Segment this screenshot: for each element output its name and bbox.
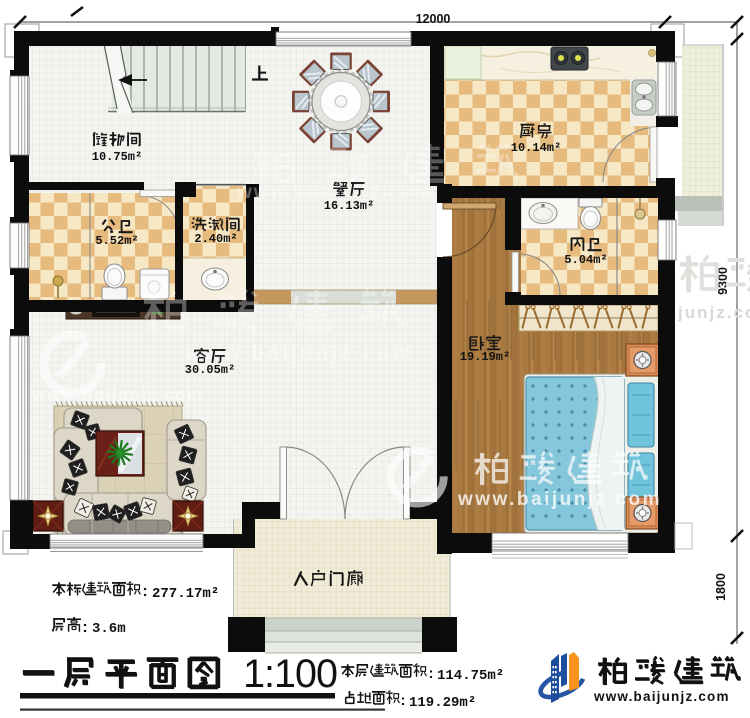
svg-text:19.19m²: 19.19m² xyxy=(460,350,510,364)
svg-text::: : xyxy=(82,619,87,636)
svg-text:5.04m²: 5.04m² xyxy=(564,253,607,267)
svg-text:119.29m²: 119.29m² xyxy=(409,695,476,711)
svg-text:30.05m²: 30.05m² xyxy=(185,363,235,377)
svg-text:www.baijunjz.com: www.baijunjz.com xyxy=(32,385,204,404)
svg-text:www.baijunjz.com: www.baijunjz.com xyxy=(457,489,662,510)
svg-text:16.13m²: 16.13m² xyxy=(324,199,374,213)
svg-text:junjz.com: junjz.com xyxy=(677,303,750,322)
svg-text:www.baijunjz.com: www.baijunjz.com xyxy=(593,689,730,704)
svg-text::: : xyxy=(401,692,406,709)
svg-text:114.75m²: 114.75m² xyxy=(437,668,504,684)
svg-text:1:100: 1:100 xyxy=(243,652,337,696)
svg-text::: : xyxy=(429,665,434,682)
svg-text:www.baijunjz.com: www.baijunjz.com xyxy=(184,342,414,365)
svg-text:12000: 12000 xyxy=(416,12,451,26)
svg-text:10.14m²: 10.14m² xyxy=(511,141,561,155)
svg-text::: : xyxy=(142,583,147,600)
svg-text:2.40m²: 2.40m² xyxy=(194,232,237,246)
svg-text:3.6m: 3.6m xyxy=(92,621,126,637)
svg-text:277.17m²: 277.17m² xyxy=(152,586,219,602)
svg-text:1800: 1800 xyxy=(714,573,728,601)
svg-text:5.52m²: 5.52m² xyxy=(95,234,138,248)
svg-text:10.75m²: 10.75m² xyxy=(92,150,142,164)
